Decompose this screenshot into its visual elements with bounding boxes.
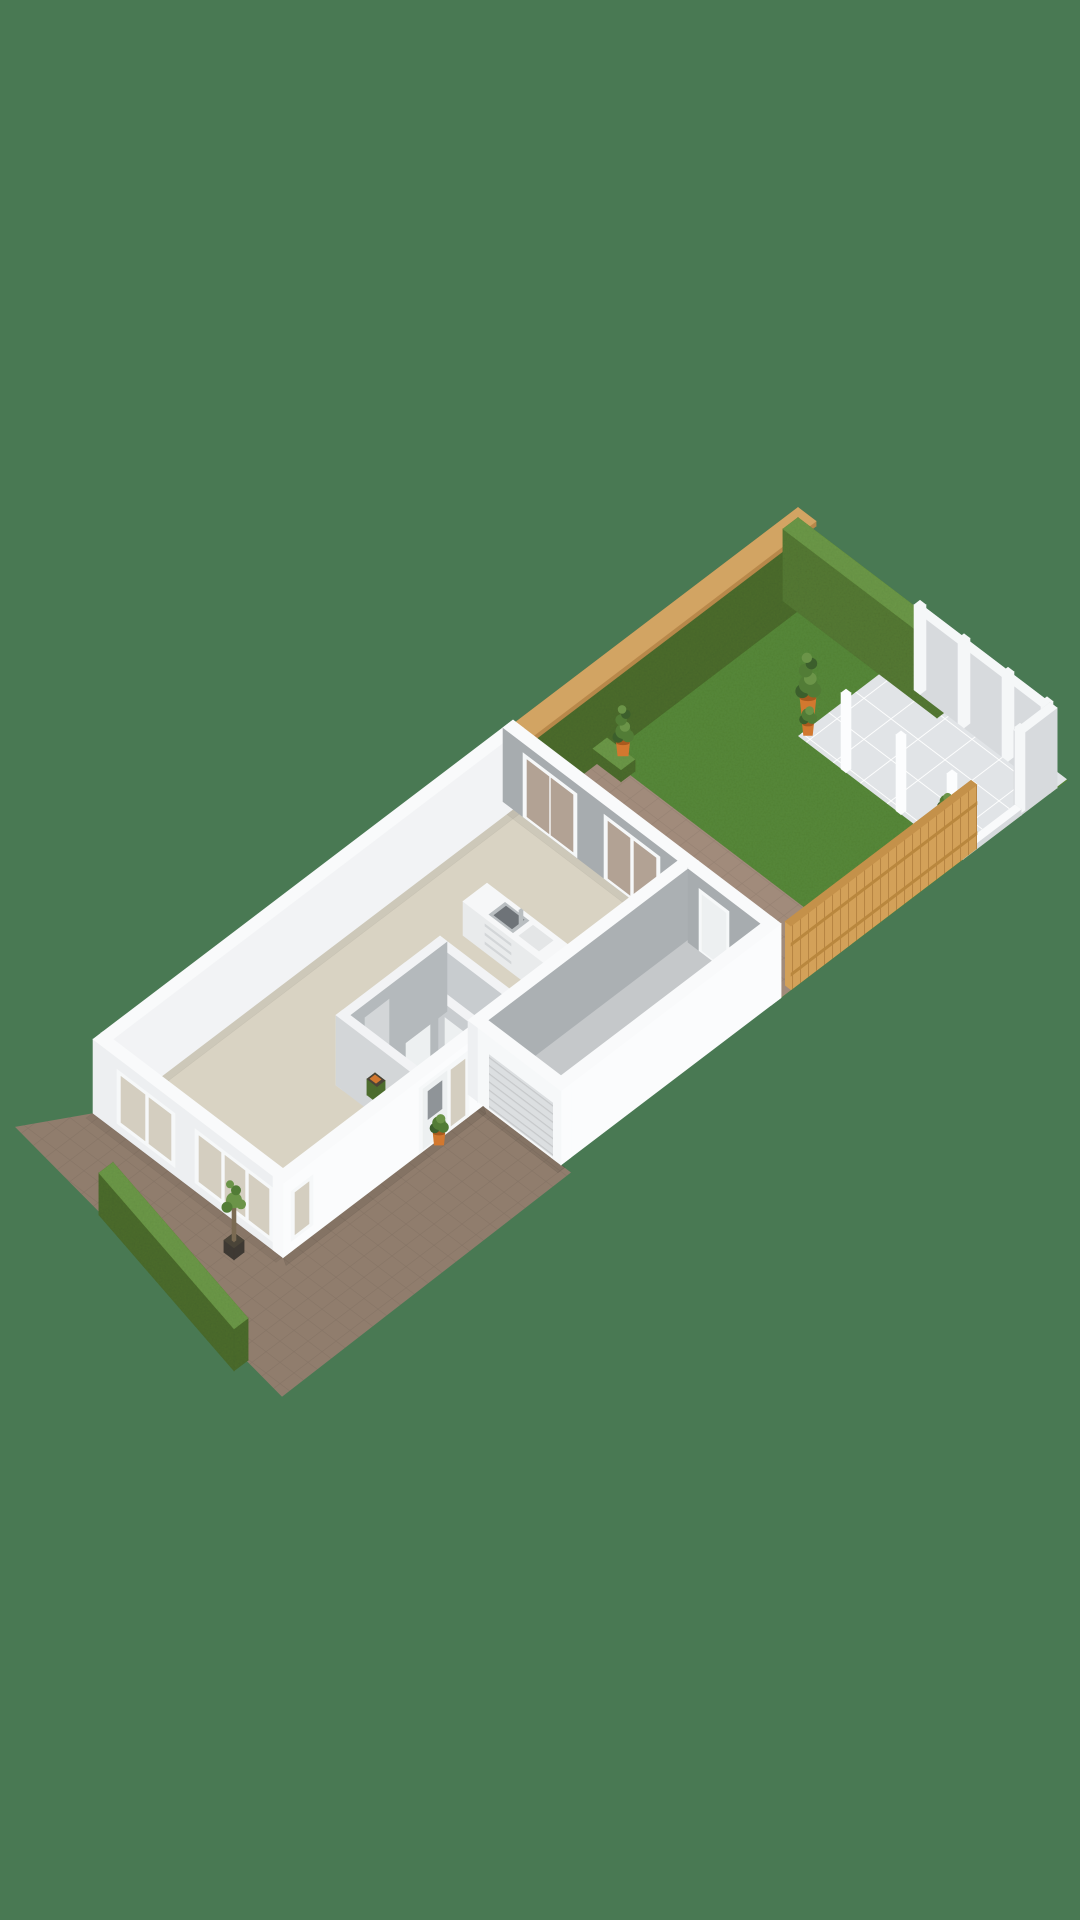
- house-garage-wall-sw: [468, 1020, 478, 1102]
- screen-post-se: [964, 638, 970, 728]
- tree-foliage: [226, 1180, 234, 1188]
- floorplan-3d-view: [0, 0, 1080, 1920]
- floor-plan-canvas: [0, 0, 1080, 1920]
- patio-post-se: [846, 693, 851, 773]
- kitchen-faucet-sw: [519, 910, 521, 926]
- patio-post-se: [901, 735, 906, 815]
- potted-plant-tall-foliage: [802, 653, 812, 663]
- potted-plant-path-foliage: [618, 705, 627, 714]
- tree-trunk-sw: [232, 1204, 234, 1242]
- tree-foliage: [236, 1199, 246, 1209]
- tree-foliage: [222, 1202, 233, 1213]
- screen-post-se: [1020, 727, 1025, 814]
- screen-post-se: [920, 605, 926, 695]
- screen-post-se: [1008, 672, 1014, 762]
- screen-post-sw: [914, 605, 920, 695]
- screen-post-sw: [1015, 727, 1020, 814]
- front-door-plant-foliage: [436, 1114, 445, 1123]
- wall-front-entry-sw: [273, 1176, 283, 1258]
- patio-post-sw: [896, 735, 901, 815]
- front-door-sidelight: [451, 1059, 465, 1126]
- potted-plant-foliage: [805, 706, 814, 715]
- screen-post-sw: [958, 638, 964, 728]
- screen-post-sw: [1002, 672, 1008, 762]
- patio-post-sw: [841, 693, 846, 773]
- garage-wall-front-se: [561, 1083, 571, 1165]
